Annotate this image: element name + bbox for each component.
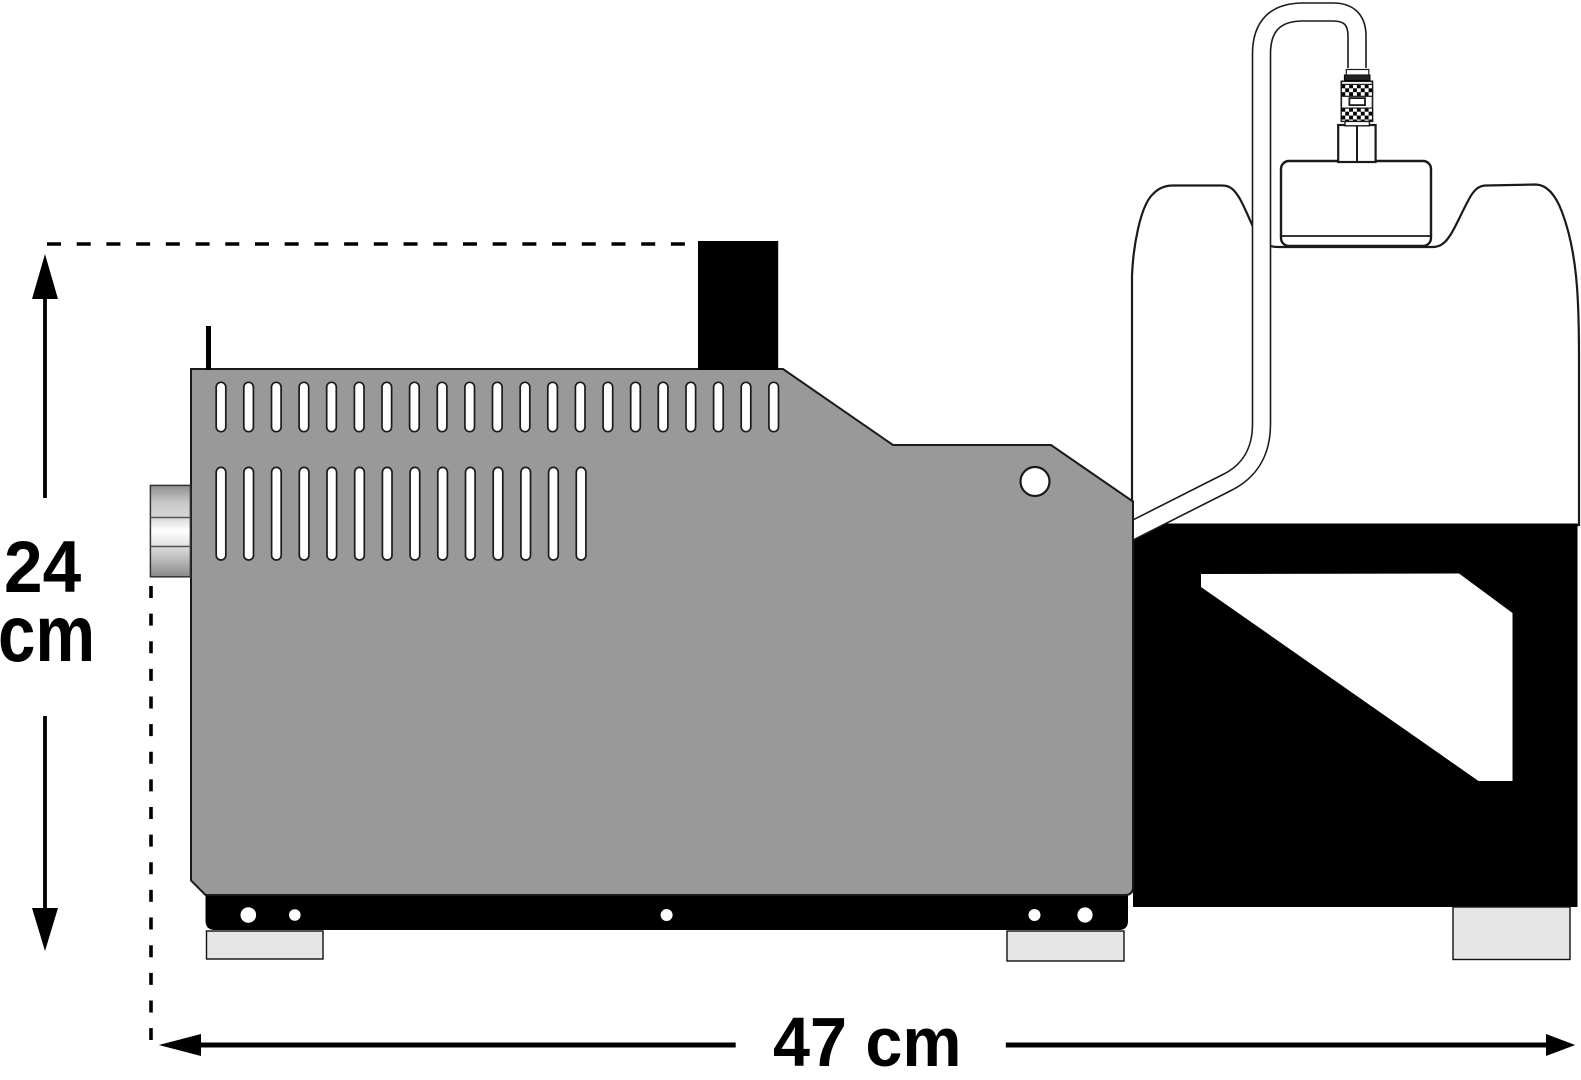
svg-text:47 cm: 47 cm bbox=[773, 1003, 962, 1080]
svg-text:cm: cm bbox=[0, 588, 95, 678]
